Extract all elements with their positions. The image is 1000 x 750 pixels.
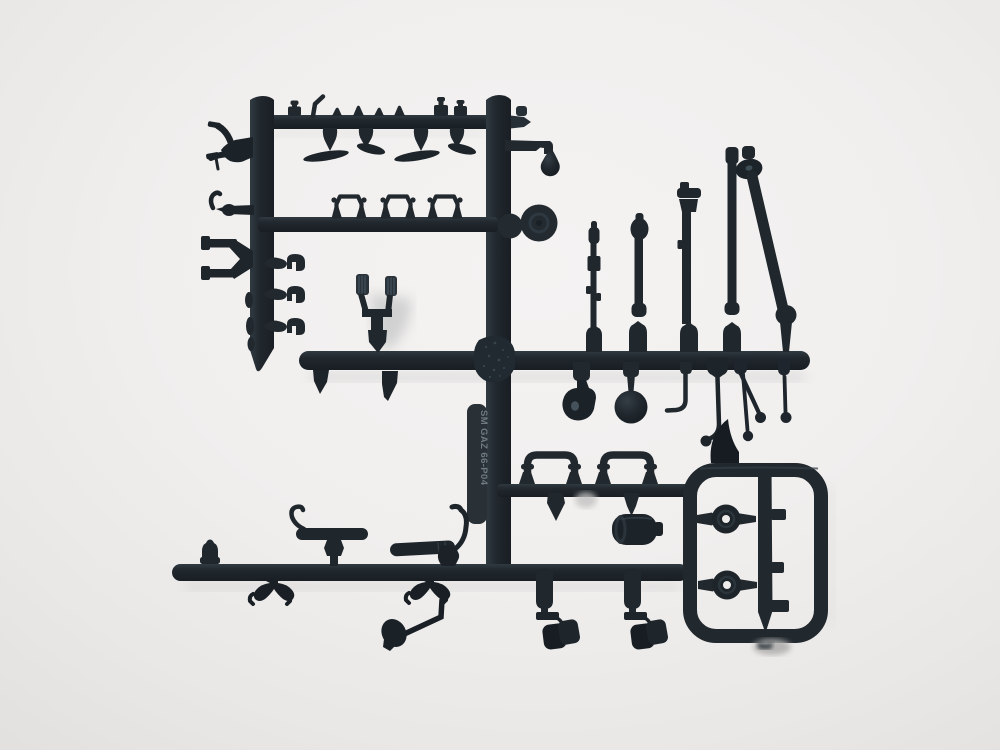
- svg-text:SM GAZ 66-P04: SM GAZ 66-P04: [478, 410, 489, 486]
